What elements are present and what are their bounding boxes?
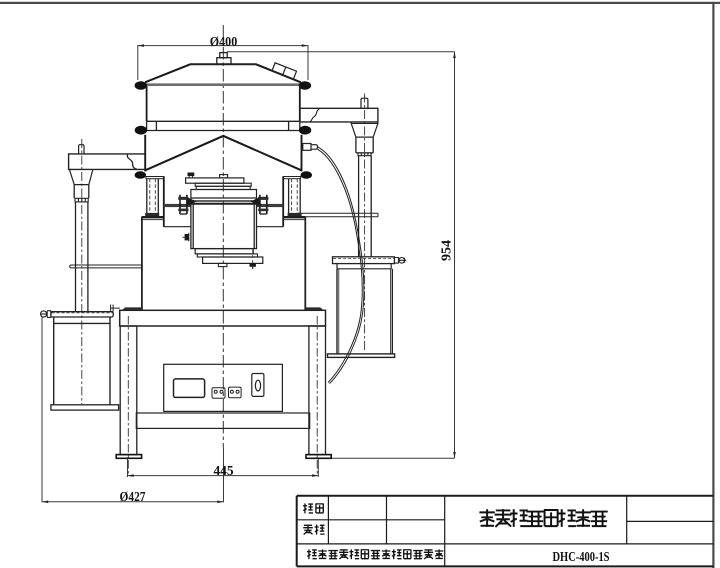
svg-text:954: 954 — [438, 240, 453, 261]
svg-text:Ø427: Ø427 — [120, 489, 146, 504]
svg-text:445: 445 — [214, 463, 234, 478]
svg-text:DHC-400-1S: DHC-400-1S — [553, 549, 610, 564]
